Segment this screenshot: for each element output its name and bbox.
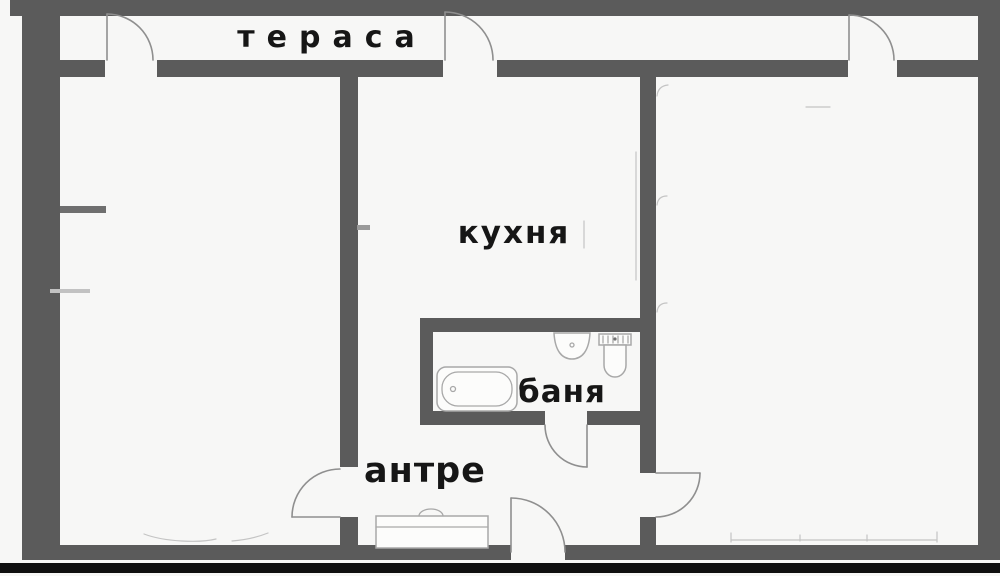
radiator-icon (731, 532, 937, 542)
photo-bottom-border (0, 563, 1000, 573)
bathroom-wall-top (420, 318, 656, 332)
door-right-room (656, 473, 700, 517)
wall-right-room-stub (640, 517, 656, 547)
door-swing-icon (107, 14, 153, 60)
dimension-ticks (50, 85, 830, 312)
wardrobe-icon (376, 509, 488, 548)
door-bathroom (545, 425, 587, 467)
wall-right-outer (978, 10, 1000, 560)
terrace-label: тераса (237, 20, 426, 55)
terrace-wall-segment (60, 60, 105, 77)
doors (107, 12, 894, 552)
door-swing-icon (511, 498, 565, 552)
bathroom-label: баня (518, 374, 606, 410)
wall-left-room-stub (340, 517, 358, 547)
wall-bottom-right-segment (565, 545, 998, 560)
door-swing-icon (849, 15, 894, 60)
bathtub-icon (437, 367, 517, 411)
door-swing-icon (445, 12, 493, 60)
outer-walls (10, 0, 1000, 560)
door-entrance (511, 498, 565, 552)
wall-left-outer (22, 12, 60, 560)
wall-top-outer (10, 0, 1000, 16)
left-room-furniture-marks (144, 533, 268, 541)
floor-plan: тераса кухня баня антре (0, 0, 1000, 576)
wall-left-room-kitchen (340, 60, 358, 467)
kitchen-label: кухня (458, 215, 571, 251)
door-terrace-right (849, 15, 894, 60)
door-left-room (292, 469, 340, 517)
bathroom-wall-left (420, 318, 433, 425)
door-terrace-kitchen (445, 12, 493, 60)
terrace-wall-segment (897, 60, 978, 77)
hallway-label: антре (364, 451, 486, 491)
sink-icon (554, 333, 590, 359)
floor-plan-drawing: тераса кухня баня антре (0, 0, 1000, 576)
terrace-wall-segment (157, 60, 443, 77)
door-swing-icon (292, 469, 340, 517)
bathroom-wall-bottom-left (420, 411, 545, 425)
door-swing-icon (545, 425, 587, 467)
terrace-wall (60, 60, 978, 77)
bathroom-wall-bottom-right (587, 411, 656, 425)
toilet-icon (599, 334, 631, 377)
door-terrace-left (107, 14, 153, 60)
terrace-wall-segment (497, 60, 848, 77)
door-swing-icon (656, 473, 700, 517)
